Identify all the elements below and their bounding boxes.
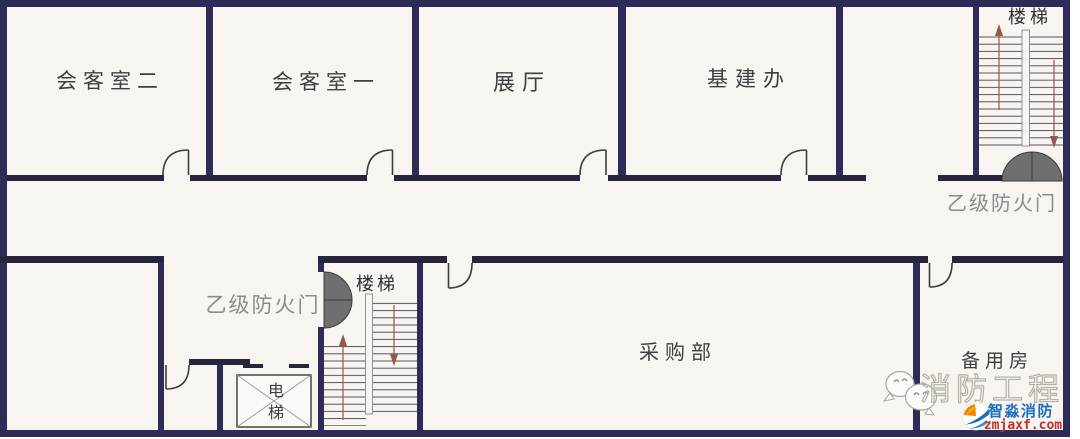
wall (318, 263, 324, 272)
floor-plan: 电 梯 会客室二 会客室一 展厅 基建办 采购部 备用房 楼梯 楼梯 乙级防火门… (0, 0, 1080, 439)
fire-door-label-top-right: 乙级防火门 (947, 191, 1057, 215)
wall (417, 263, 423, 430)
wall (158, 263, 164, 430)
stair-treads (979, 33, 1022, 147)
logo-site: zmjaxf.com (984, 418, 1062, 433)
elevator-door-mark (243, 364, 263, 368)
wall (318, 327, 324, 430)
wall (394, 175, 580, 181)
wall (217, 359, 223, 430)
room-label-reception-1: 会客室一 (272, 70, 380, 94)
wall (0, 256, 164, 263)
stairs-top-right (979, 24, 1063, 148)
wall (0, 430, 1070, 437)
room-label-spare-room: 备用房 (961, 350, 1033, 372)
room-label-infrastructure-office: 基建办 (707, 67, 791, 91)
wall (206, 7, 213, 175)
wall (808, 175, 866, 181)
wall (472, 256, 928, 263)
fire-door-label-left: 乙级防火门 (206, 293, 321, 317)
wall (0, 0, 7, 437)
stair-treads (324, 342, 366, 426)
room-label-purchasing-dept: 采购部 (639, 340, 717, 364)
elevator-door-mark (289, 364, 309, 368)
stair-rail (1022, 30, 1030, 146)
wall (423, 256, 447, 263)
wall (836, 7, 843, 175)
wall (608, 175, 781, 181)
wall (973, 7, 979, 175)
wall (0, 0, 1070, 7)
stair-rail (366, 294, 373, 414)
room-label-exhibition-hall: 展厅 (493, 71, 551, 96)
floor-plan-page: 电 梯 会客室二 会客室一 展厅 基建办 采购部 备用房 楼梯 楼梯 乙级防火门… (0, 0, 1080, 439)
brand-logo: 智淼消防 zmjaxf.com (962, 402, 1062, 433)
wall (1063, 0, 1070, 437)
room-label-reception-2: 会客室二 (56, 69, 164, 93)
stairs-label-top: 楼梯 (1008, 7, 1052, 28)
stairs-label-bottom: 楼梯 (356, 274, 398, 295)
elevator-label-bottom: 梯 (268, 403, 284, 422)
stair-treads (1030, 33, 1064, 147)
elevator-label-top: 电 (268, 381, 284, 400)
wall (952, 256, 1063, 263)
wall (7, 175, 164, 181)
wall (618, 7, 626, 175)
wall (190, 175, 367, 181)
wall (189, 359, 250, 365)
wall (412, 7, 419, 175)
wall (938, 175, 1002, 181)
wall (318, 256, 423, 263)
